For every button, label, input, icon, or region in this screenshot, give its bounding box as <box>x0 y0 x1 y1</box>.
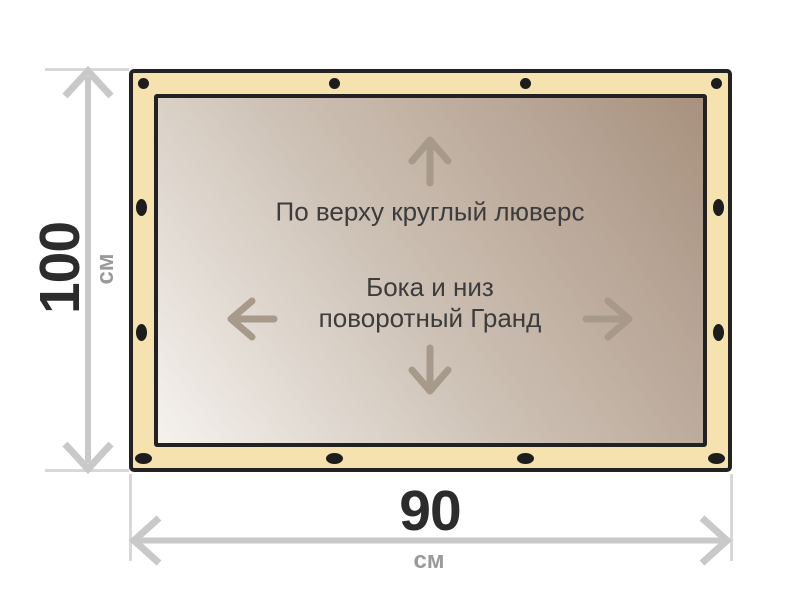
grommet-right-2 <box>713 324 724 341</box>
grommet-left-1 <box>136 199 147 216</box>
sides-bottom-note-line1: Бока и низ <box>319 272 542 303</box>
arrow-down-icon <box>408 344 452 396</box>
grommet-top-1 <box>138 78 149 89</box>
arrowhead-up-icon <box>65 71 111 96</box>
grommet-bottom-3 <box>517 453 534 464</box>
grommet-bottom-4 <box>708 453 725 464</box>
sides-bottom-note-line2: поворотный Гранд <box>319 303 542 334</box>
height-unit: см <box>92 253 120 284</box>
arrowhead-left-icon <box>134 518 159 563</box>
grommet-top-2 <box>329 78 340 89</box>
grommet-bottom-2 <box>326 453 343 464</box>
grommet-top-3 <box>520 78 531 89</box>
grommet-right-1 <box>713 199 724 216</box>
arrowhead-down-icon <box>65 444 111 469</box>
width-value: 90 <box>399 478 460 544</box>
banner-size-diagram: По верху круглый люверс Бока и низ повор… <box>0 0 800 600</box>
arrowhead-right-icon <box>702 518 727 563</box>
banner-frame <box>129 69 732 472</box>
arrow-up-icon <box>408 135 452 187</box>
sides-bottom-note: Бока и низ поворотный Гранд <box>319 272 542 334</box>
grommet-bottom-1 <box>135 453 152 464</box>
arrow-left-icon <box>226 297 278 341</box>
height-value: 100 <box>27 222 93 314</box>
grommet-left-2 <box>136 324 147 341</box>
width-unit: см <box>413 547 444 575</box>
arrow-right-icon <box>582 297 634 341</box>
grommet-top-4 <box>711 78 722 89</box>
top-edge-note: По верху круглый люверс <box>276 197 585 228</box>
